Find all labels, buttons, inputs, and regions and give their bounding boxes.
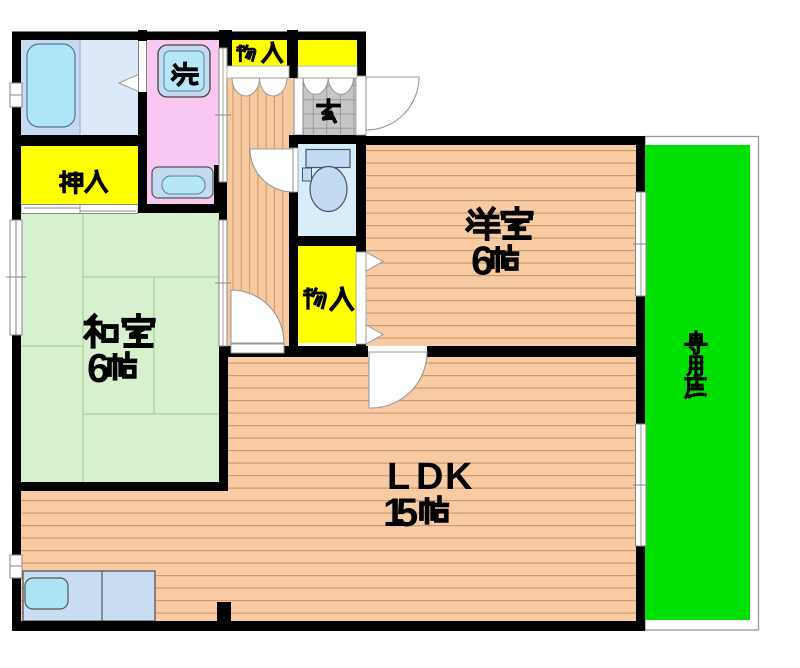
svg-text:D: D xyxy=(416,456,443,498)
svg-text:5: 5 xyxy=(396,491,418,535)
svg-text:6: 6 xyxy=(471,238,494,284)
svg-text:K: K xyxy=(445,456,473,498)
svg-text:6: 6 xyxy=(87,345,110,391)
